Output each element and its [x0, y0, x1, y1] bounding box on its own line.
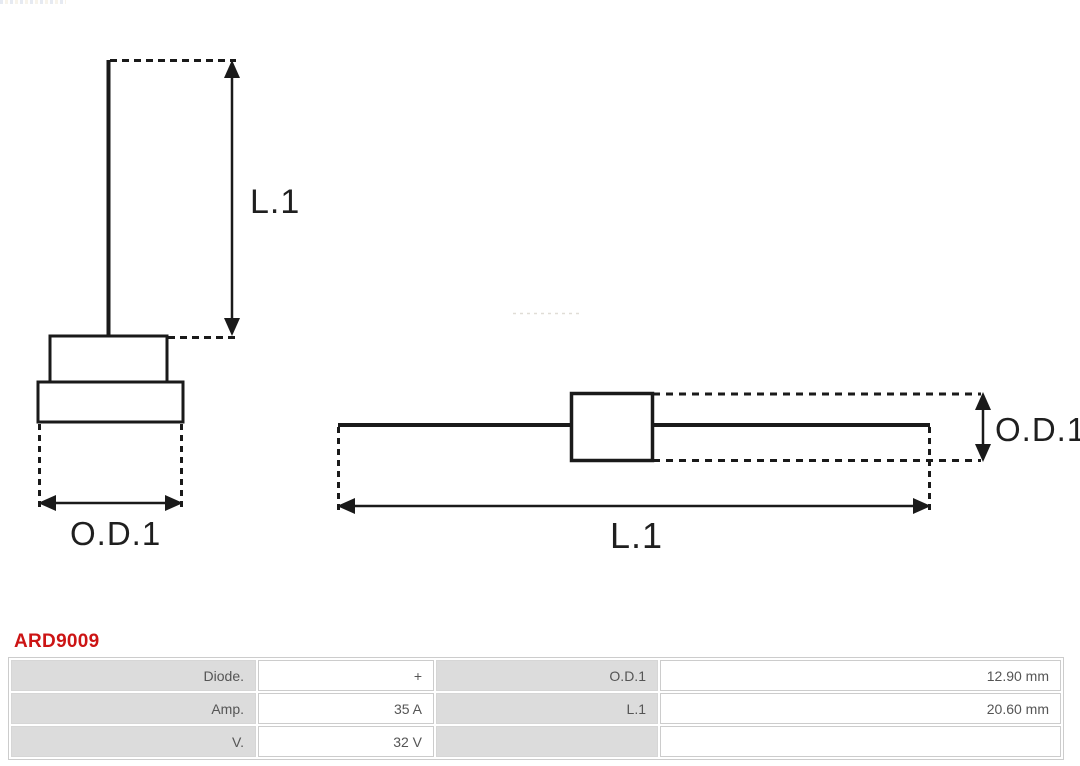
spec-value-od1: 12.90 mm [660, 660, 1061, 691]
side-length-label: L.1 [610, 515, 663, 556]
arrowhead-right-icon [913, 498, 931, 514]
front-view: L.1 O.D.1 [38, 60, 300, 552]
front-body-flange-rect [38, 382, 183, 422]
table-row: V. 32 V [11, 726, 1061, 757]
spec-label-empty [436, 726, 658, 757]
arrowhead-up-icon [224, 60, 240, 78]
spec-label-voltage: V. [11, 726, 256, 757]
arrowhead-down-icon [224, 318, 240, 336]
spec-label-diode: Diode. [11, 660, 256, 691]
arrowhead-left-icon [337, 498, 355, 514]
technical-drawing: L.1 O.D.1 O.D.1 L.1 [0, 0, 1080, 620]
spec-value-l1: 20.60 mm [660, 693, 1061, 724]
side-diameter-label: O.D.1 [995, 411, 1080, 448]
arrowhead-left-icon [38, 495, 56, 511]
spec-label-l1: L.1 [436, 693, 658, 724]
spec-value-voltage: 32 V [258, 726, 434, 757]
front-diameter-label: O.D.1 [70, 515, 161, 552]
table-row: Diode. + O.D.1 12.90 mm [11, 660, 1061, 691]
spec-label-amp: Amp. [11, 693, 256, 724]
arrowhead-up-icon [975, 392, 991, 410]
spec-value-diode: + [258, 660, 434, 691]
arrowhead-down-icon [975, 444, 991, 462]
side-body-rect [572, 394, 653, 461]
product-drawing-page: L.1 O.D.1 O.D.1 L.1 [0, 0, 1080, 766]
spec-value-amp: 35 A [258, 693, 434, 724]
spec-value-empty [660, 726, 1061, 757]
table-row: Amp. 35 A L.1 20.60 mm [11, 693, 1061, 724]
front-body-top-rect [50, 336, 167, 382]
spec-label-od1: O.D.1 [436, 660, 658, 691]
arrowhead-right-icon [165, 495, 183, 511]
side-view: O.D.1 L.1 [337, 392, 1080, 556]
part-code: ARD9009 [14, 631, 100, 653]
spec-table: Diode. + O.D.1 12.90 mm Amp. 35 A L.1 20… [8, 657, 1064, 760]
front-length-label: L.1 [250, 183, 300, 221]
